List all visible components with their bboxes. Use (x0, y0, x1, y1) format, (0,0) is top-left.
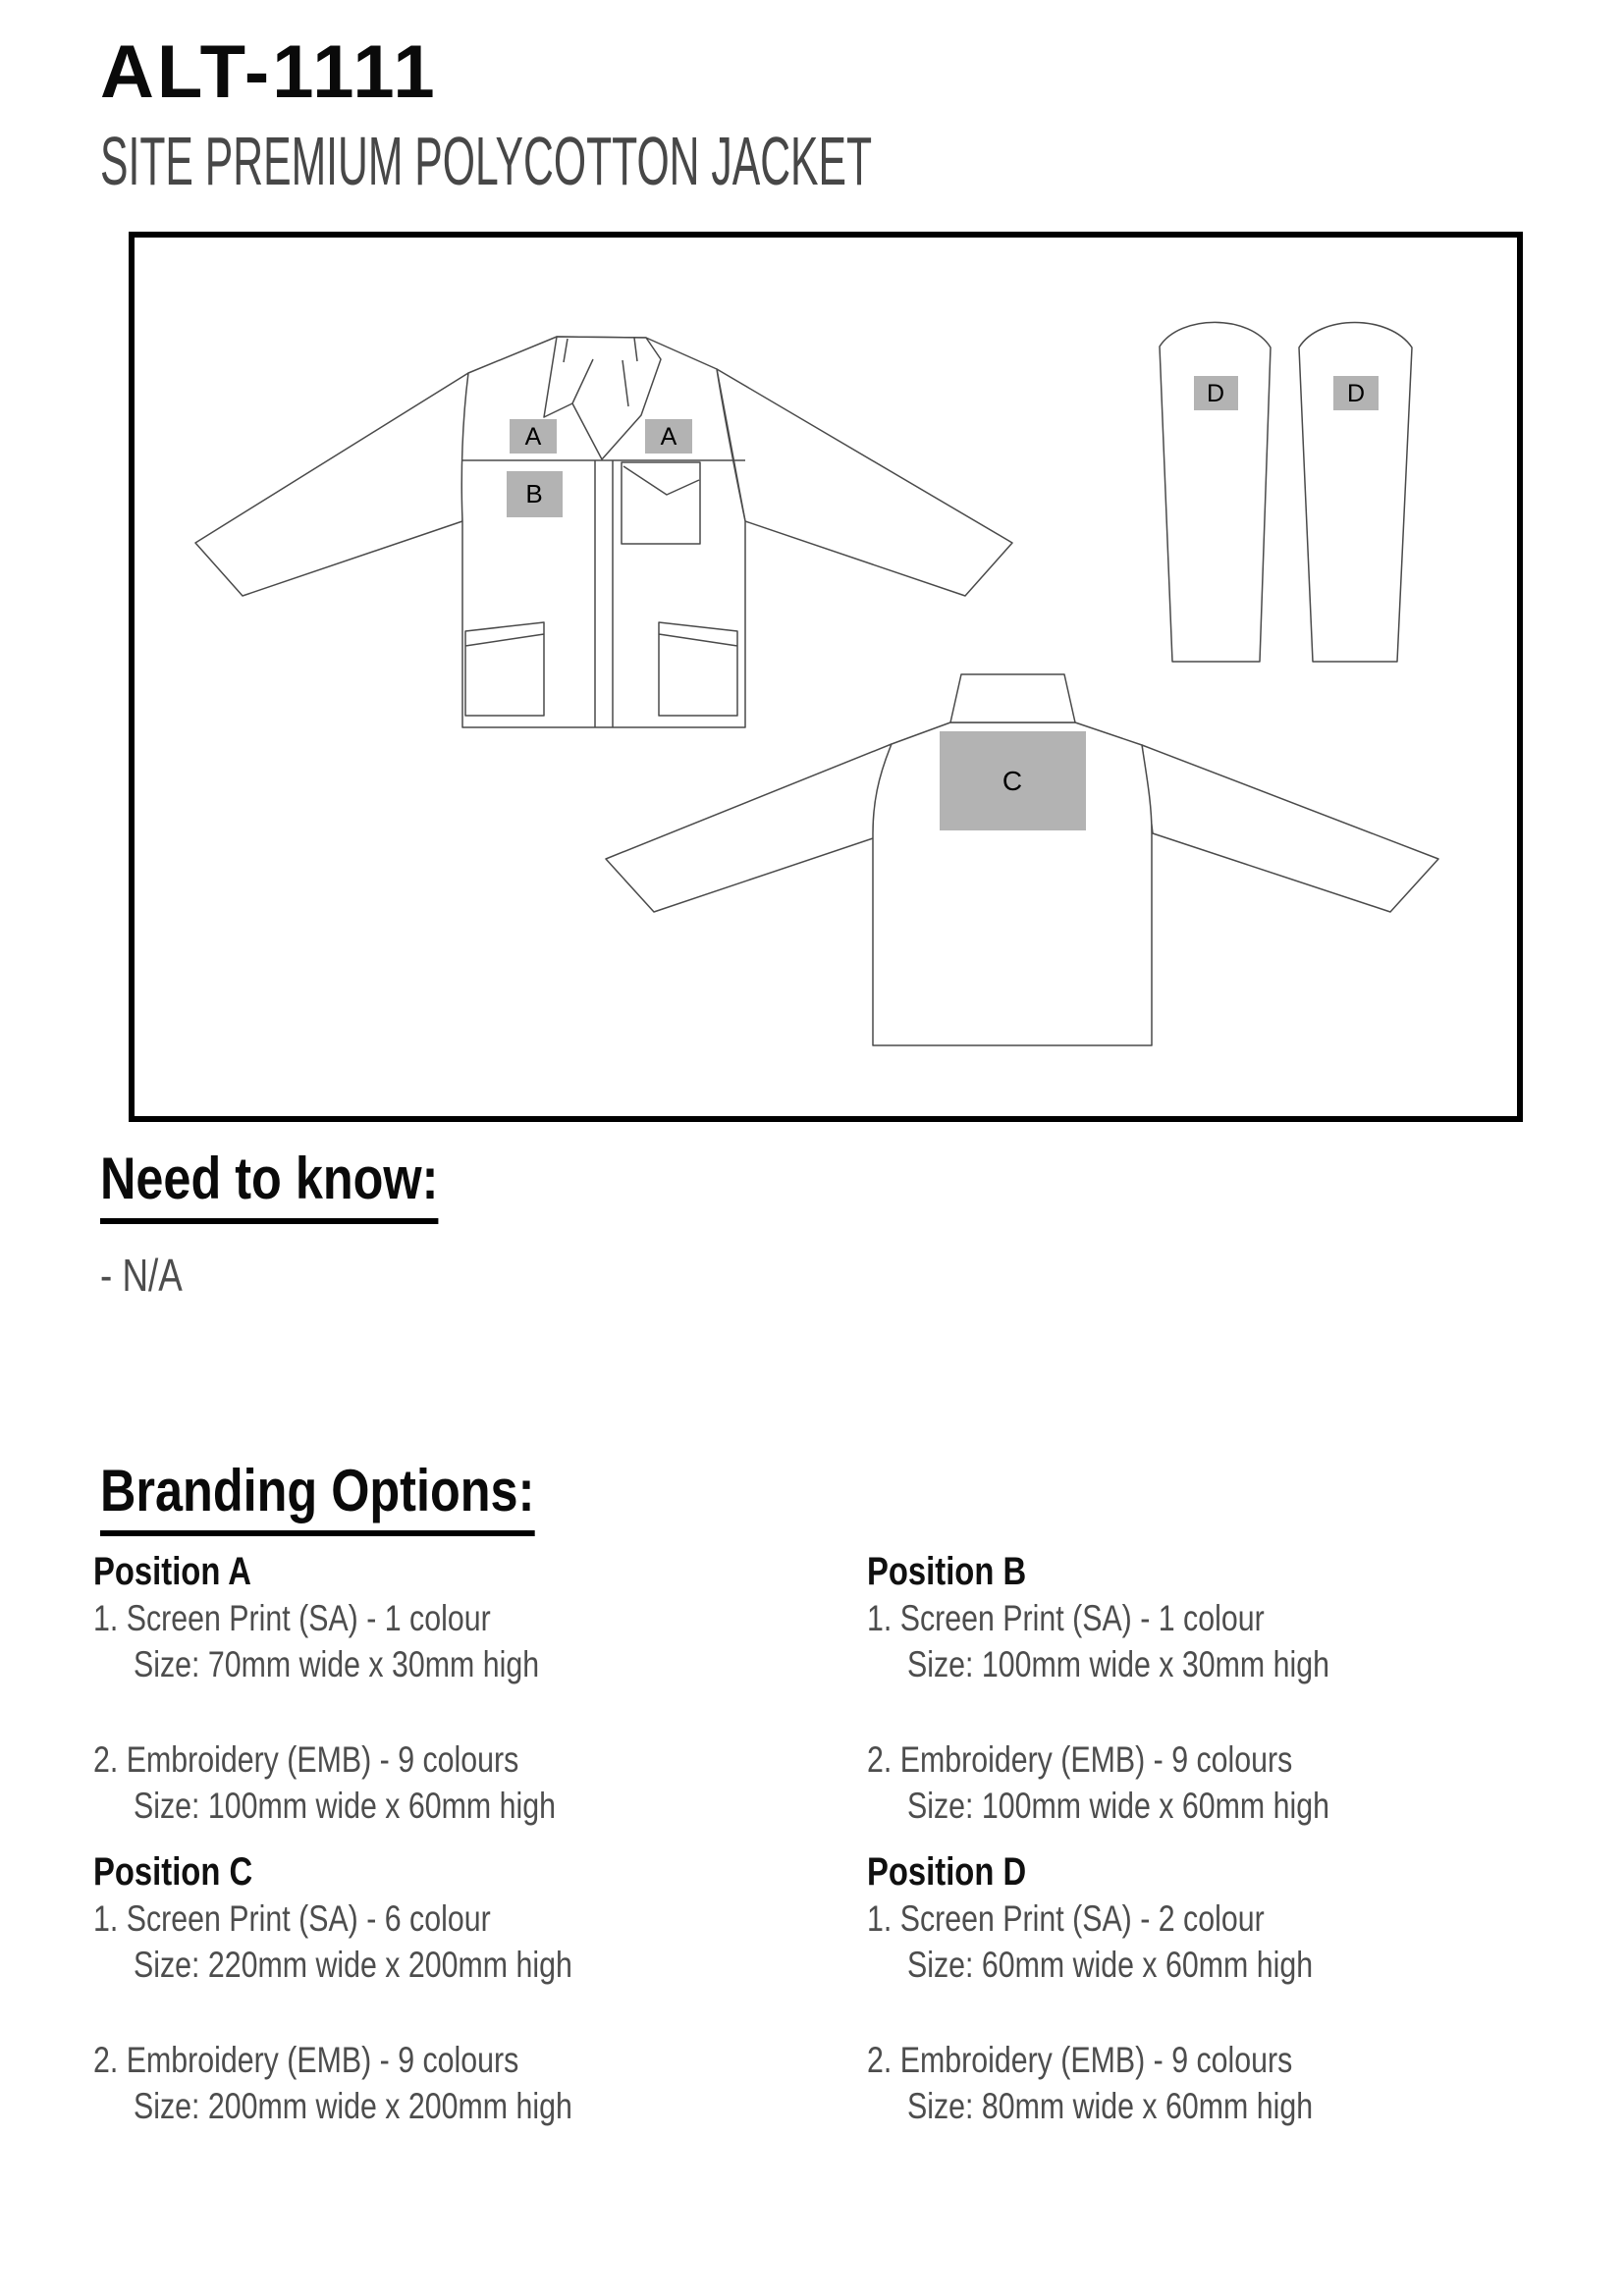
position-b-size-2: Size: 100mm wide x 60mm high (867, 1783, 1479, 1829)
position-b-size-1: Size: 100mm wide x 30mm high (867, 1641, 1479, 1687)
back-collar (950, 674, 1075, 722)
marker-a-right: A (645, 419, 692, 454)
branding-options-heading-text: Branding Options: (100, 1457, 534, 1536)
position-d-option-2: 2. Embroidery (EMB) - 9 colours (867, 2037, 1479, 2083)
position-c-option-1: 1. Screen Print (SA) - 6 colour (93, 1896, 705, 1942)
position-b-block: Position B 1. Screen Print (SA) - 1 colo… (867, 1549, 1479, 1829)
position-a-option-1: 1. Screen Print (SA) - 1 colour (93, 1595, 705, 1641)
position-a-size-2: Size: 100mm wide x 60mm high (93, 1783, 705, 1829)
marker-a-right-label: A (661, 423, 677, 451)
page-subtitle: SITE PREMIUM POLYCOTTON JACKET (100, 122, 872, 200)
marker-d-left-label: D (1207, 380, 1224, 407)
position-d-size-1: Size: 60mm wide x 60mm high (867, 1942, 1479, 1988)
sleeve-panel-left (1160, 322, 1271, 662)
position-a-option-2: 2. Embroidery (EMB) - 9 colours (93, 1736, 705, 1783)
jacket-front-drawing: A A B (195, 337, 1012, 727)
marker-c-label: C (1002, 766, 1022, 796)
marker-c: C (940, 731, 1086, 830)
spec-sheet-page: ALT-1111 SITE PREMIUM POLYCOTTON JACKET (0, 0, 1624, 2296)
position-c-size-2: Size: 200mm wide x 200mm high (93, 2083, 705, 2129)
position-d-block: Position D 1. Screen Print (SA) - 2 colo… (867, 1849, 1479, 2129)
need-to-know-item: - N/A (100, 1249, 183, 1302)
marker-d-left: D (1194, 376, 1238, 410)
back-left-sleeve (606, 744, 892, 912)
jacket-back-drawing: C (606, 674, 1438, 1045)
position-c-title: Position C (93, 1849, 705, 1896)
back-right-sleeve (1142, 745, 1438, 912)
marker-d-right-label: D (1347, 380, 1365, 407)
position-b-option-2: 2. Embroidery (EMB) - 9 colours (867, 1736, 1479, 1783)
branding-options-heading: Branding Options: (100, 1457, 534, 1536)
position-c-block: Position C 1. Screen Print (SA) - 6 colo… (93, 1849, 705, 2129)
position-c-option-2: 2. Embroidery (EMB) - 9 colours (93, 2037, 705, 2083)
front-right-sleeve (717, 369, 1012, 596)
position-c-size-1: Size: 220mm wide x 200mm high (93, 1942, 705, 1988)
position-b-option-1: 1. Screen Print (SA) - 1 colour (867, 1595, 1479, 1641)
need-to-know-heading: Need to know: (100, 1145, 438, 1224)
diagram-frame: A A B C (129, 232, 1523, 1122)
position-d-option-1: 1. Screen Print (SA) - 2 colour (867, 1896, 1479, 1942)
need-to-know-heading-text: Need to know: (100, 1145, 438, 1224)
position-d-size-2: Size: 80mm wide x 60mm high (867, 2083, 1479, 2129)
position-a-size-1: Size: 70mm wide x 30mm high (93, 1641, 705, 1687)
position-b-title: Position B (867, 1549, 1479, 1595)
sleeve-panel-right (1299, 323, 1412, 663)
front-left-sleeve (195, 373, 468, 596)
marker-b: B (507, 471, 563, 517)
position-d-title: Position D (867, 1849, 1479, 1896)
page-title: ALT-1111 (100, 29, 438, 115)
position-a-title: Position A (93, 1549, 705, 1595)
marker-a-left: A (510, 419, 557, 454)
sleeve-panels-drawing: D D (1160, 322, 1412, 662)
marker-b-label: B (525, 479, 542, 508)
marker-d-right: D (1333, 376, 1379, 410)
marker-a-left-label: A (525, 423, 542, 451)
garment-diagram: A A B C (135, 238, 1517, 1116)
position-a-block: Position A 1. Screen Print (SA) - 1 colo… (93, 1549, 705, 1829)
